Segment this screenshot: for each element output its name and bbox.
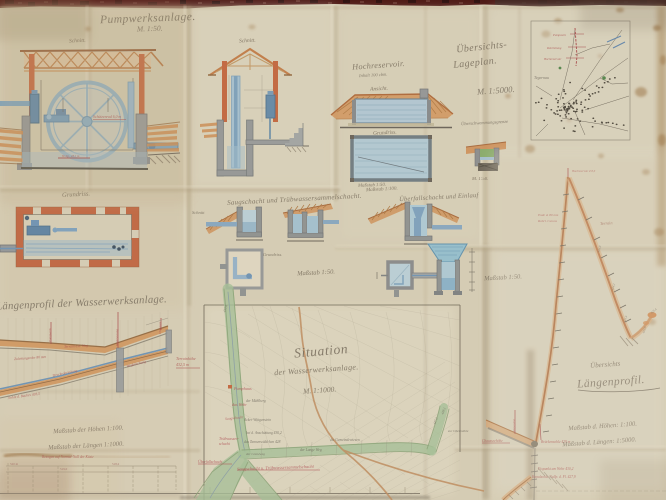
svg-text:Chaussee: Chaussee xyxy=(158,321,162,334)
svg-text:W.Sp. 431 m: W.Sp. 431 m xyxy=(62,154,80,158)
svg-text:Grundriss.: Grundriss. xyxy=(62,190,91,198)
svg-text:Maßstab 1:50.: Maßstab 1:50. xyxy=(357,183,386,189)
svg-text:Wegkreuzung: Wegkreuzung xyxy=(115,329,119,346)
svg-text:Ende d. 80 mm: Ende d. 80 mm xyxy=(537,213,559,217)
svg-text:Pumpwerk: Pumpwerk xyxy=(48,328,52,343)
svg-text:Acker Wittgenstein: Acker Wittgenstein xyxy=(243,418,271,422)
svg-text:Überfallschacht: Überfallschacht xyxy=(198,459,223,464)
svg-text:der Mühlberg: der Mühlberg xyxy=(246,399,266,403)
svg-text:das Tannenwäldchen 428: das Tannenwäldchen 428 xyxy=(244,440,281,444)
svg-text:Bezogen auf Normal-Null der Kü: Bezogen auf Normal-Null der Küste xyxy=(42,455,94,459)
svg-text:M. 1:50.: M. 1:50. xyxy=(471,177,488,182)
svg-text:Rohrl. Cunow: Rohrl. Cunow xyxy=(537,219,558,223)
svg-text:Schnitt.: Schnitt. xyxy=(239,38,256,45)
svg-text:Pumphaus: Pumphaus xyxy=(233,386,252,391)
svg-text:520 m: 520 m xyxy=(10,462,19,466)
svg-text:Terrain: Terrain xyxy=(600,220,613,226)
svg-text:zur Obermühle: zur Obermühle xyxy=(447,429,469,433)
svg-text:Tegernau: Tegernau xyxy=(534,75,549,80)
svg-text:Schnitt: Schnitt xyxy=(192,210,205,215)
svg-text:der Lange Weg: der Lange Weg xyxy=(300,448,322,452)
svg-text:Chausseehöhe: Chausseehöhe xyxy=(482,439,503,443)
svg-text:Trübwasser-: Trübwasser- xyxy=(219,436,240,441)
svg-text:Rohrleitung: Rohrleitung xyxy=(546,46,562,50)
svg-text:der Grenzweg: der Grenzweg xyxy=(246,452,265,456)
svg-text:Wegegabel: Wegegabel xyxy=(512,419,516,432)
svg-text:Hochreservoir 455,0: Hochreservoir 455,0 xyxy=(571,170,596,173)
svg-text:Terrainhöhe: Terrainhöhe xyxy=(176,356,196,361)
svg-text:Schnitt.: Schnitt. xyxy=(69,38,86,45)
svg-text:schacht: schacht xyxy=(219,442,231,446)
svg-text:das Wehr: das Wehr xyxy=(232,402,247,407)
svg-text:Grundriss.: Grundriss. xyxy=(263,252,282,257)
svg-text:die Gemeindewiesen: die Gemeindewiesen xyxy=(330,438,360,442)
svg-text:Ansicht.: Ansicht. xyxy=(369,86,388,93)
svg-text:Pumpwerk: Pumpwerk xyxy=(552,33,566,37)
svg-text:Hochreservoir: Hochreservoir xyxy=(543,57,562,61)
svg-text:M. 1:50.: M. 1:50. xyxy=(136,24,163,34)
